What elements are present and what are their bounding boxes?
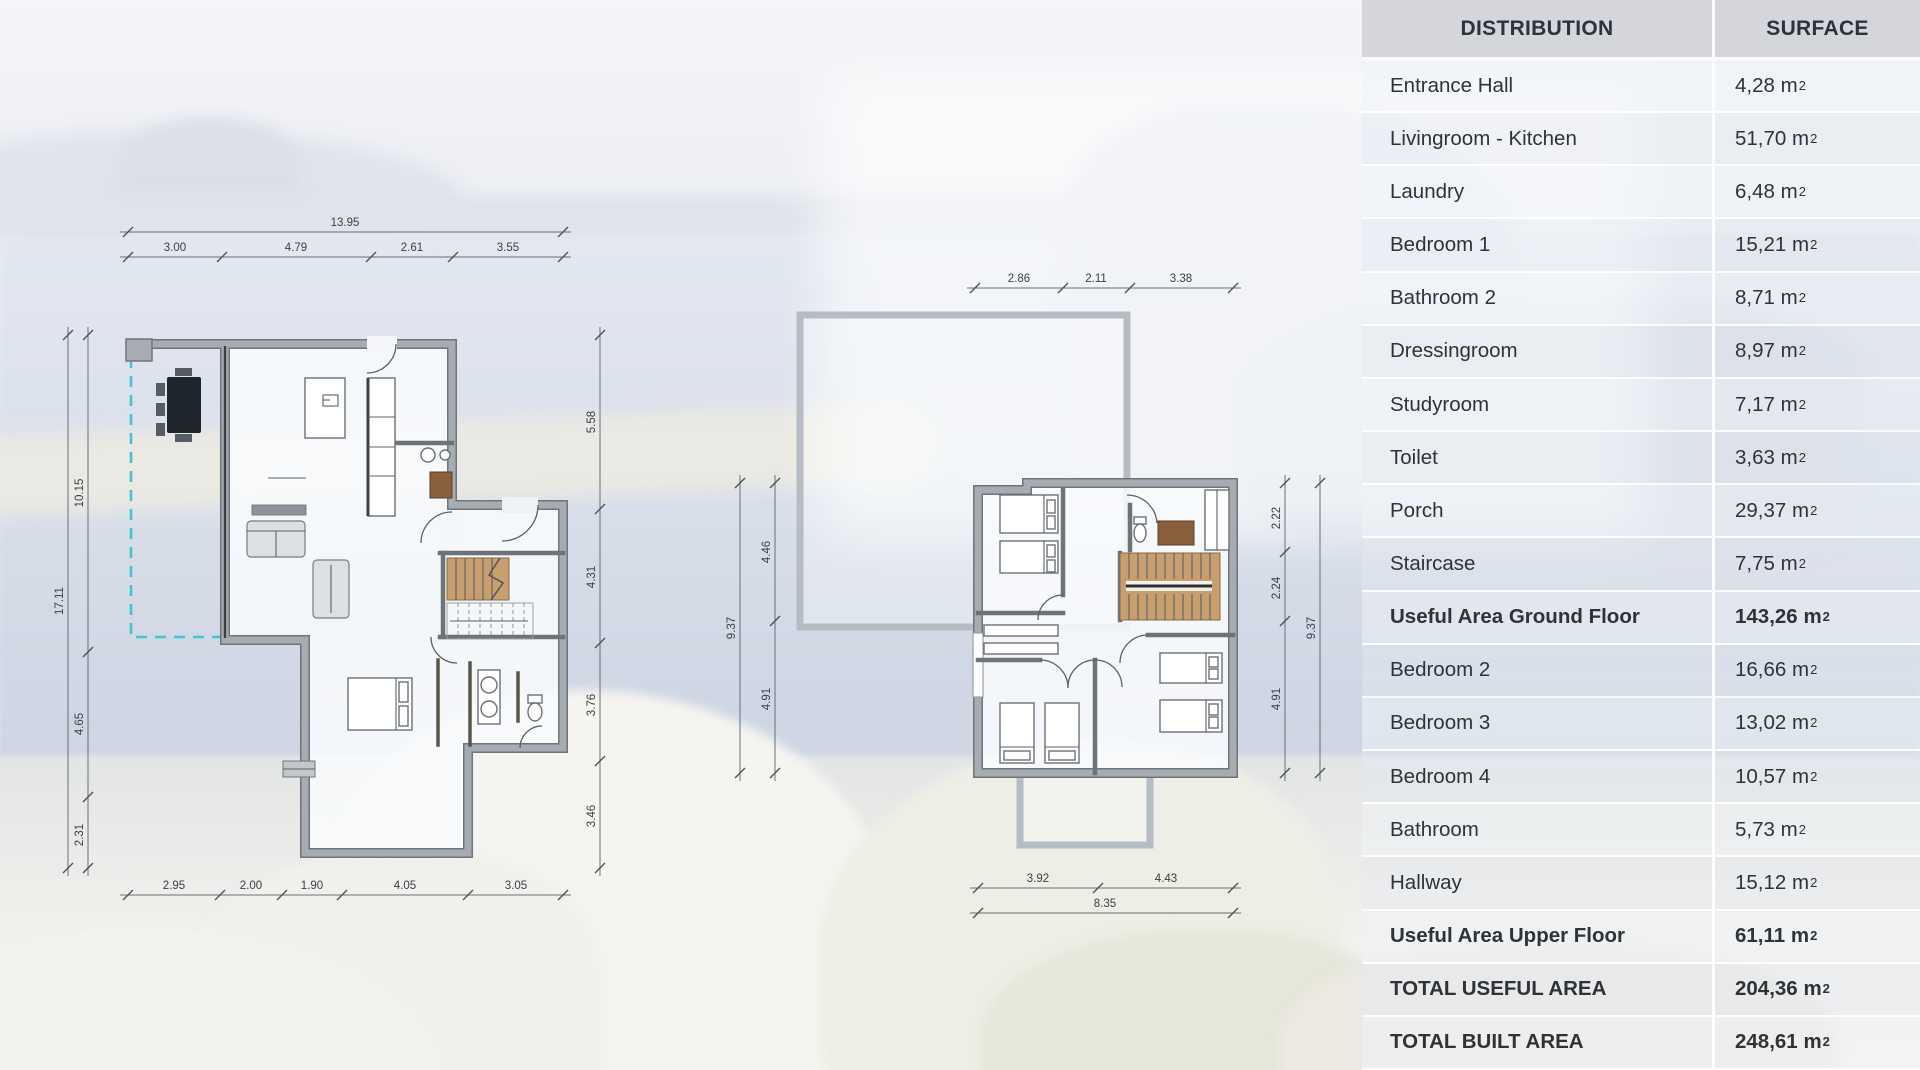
table-row: Toilet 3,63m2 <box>1362 432 1920 485</box>
svg-text:4.65: 4.65 <box>74 713 86 735</box>
table-row: Staircase 7,75m2 <box>1362 538 1920 591</box>
room-area: 51,70m2 <box>1712 113 1920 164</box>
svg-text:3.38: 3.38 <box>1170 273 1192 285</box>
table-row: Porch 29,37m2 <box>1362 485 1920 538</box>
room-area: 6,48m2 <box>1712 166 1920 217</box>
room-label: Staircase <box>1362 538 1712 589</box>
svg-text:2.00: 2.00 <box>240 880 262 892</box>
table-row-total: TOTAL BUILT AREA 248,61m2 <box>1362 1017 1920 1070</box>
room-label: Toilet <box>1362 432 1712 483</box>
room-area: 248,61m2 <box>1712 1017 1920 1068</box>
header-surface: SURFACE <box>1712 0 1920 57</box>
svg-text:17.11: 17.11 <box>54 587 66 615</box>
kitchen-island <box>305 378 345 438</box>
table-row: Bedroom 4 10,57m2 <box>1362 751 1920 804</box>
svg-text:2.86: 2.86 <box>1008 273 1030 285</box>
vanity-brown <box>1158 521 1194 545</box>
bed-double <box>348 678 412 730</box>
room-label: Porch <box>1362 485 1712 536</box>
room-label: Studyroom <box>1362 379 1712 430</box>
table-row: Dressingroom 8,97m2 <box>1362 326 1920 379</box>
svg-text:3.05: 3.05 <box>505 880 527 892</box>
room-label: Bedroom 3 <box>1362 698 1712 749</box>
table-row: Hallway 15,12m2 <box>1362 857 1920 910</box>
upper-floor-plan: 2.86 2.11 3.38 9.37 4.46 4.91 2.22 2.24 … <box>700 205 1360 935</box>
svg-text:3.46: 3.46 <box>586 805 598 827</box>
svg-text:4.05: 4.05 <box>394 880 416 892</box>
room-area: 5,73m2 <box>1712 804 1920 855</box>
room-area: 7,75m2 <box>1712 538 1920 589</box>
table-header: DISTRIBUTION SURFACE <box>1362 0 1920 60</box>
svg-text:3.92: 3.92 <box>1027 873 1049 885</box>
kitchen-cabinets <box>368 378 395 516</box>
room-label: Bathroom <box>1362 804 1712 855</box>
ground-floor-plan: 13.95 3.00 4.79 2.61 3.55 17.11 10.15 4.… <box>30 205 620 935</box>
room-area: 204,36m2 <box>1712 964 1920 1015</box>
svg-text:3.00: 3.00 <box>164 242 186 254</box>
table-row-subtotal: Useful Area Ground Floor 143,26m2 <box>1362 592 1920 645</box>
room-label: Laundry <box>1362 166 1712 217</box>
table-row-total: TOTAL USEFUL AREA 204,36m2 <box>1362 964 1920 1017</box>
svg-text:4.43: 4.43 <box>1155 873 1177 885</box>
svg-text:9.37: 9.37 <box>1306 617 1318 639</box>
svg-text:2.11: 2.11 <box>1085 273 1107 285</box>
svg-text:4.31: 4.31 <box>586 566 598 588</box>
svg-text:3.55: 3.55 <box>497 242 519 254</box>
table-row: Studyroom 7,17m2 <box>1362 379 1920 432</box>
svg-text:10.15: 10.15 <box>74 479 86 508</box>
room-label: TOTAL BUILT AREA <box>1362 1017 1712 1068</box>
room-area: 13,02m2 <box>1712 698 1920 749</box>
table-row: Bathroom 2 8,71m2 <box>1362 273 1920 326</box>
room-area: 15,12m2 <box>1712 857 1920 908</box>
background-mountain <box>120 118 300 208</box>
room-label: TOTAL USEFUL AREA <box>1362 964 1712 1015</box>
svg-text:4.46: 4.46 <box>761 541 773 563</box>
table-row: Bedroom 3 13,02m2 <box>1362 698 1920 751</box>
sofa <box>247 521 305 557</box>
svg-text:2.95: 2.95 <box>163 880 185 892</box>
room-label: Livingroom - Kitchen <box>1362 113 1712 164</box>
table-row: Livingroom - Kitchen 51,70m2 <box>1362 113 1920 166</box>
tv-sideboard <box>252 505 306 515</box>
svg-text:8.35: 8.35 <box>1094 898 1116 910</box>
staircase <box>1120 553 1220 620</box>
table-row: Bedroom 1 15,21m2 <box>1362 219 1920 272</box>
room-area: 8,97m2 <box>1712 326 1920 377</box>
room-area: 7,17m2 <box>1712 379 1920 430</box>
svg-text:4.91: 4.91 <box>761 688 773 710</box>
svg-text:4.91: 4.91 <box>1271 688 1283 710</box>
room-label: Hallway <box>1362 857 1712 908</box>
svg-text:2.22: 2.22 <box>1271 507 1283 529</box>
svg-text:2.31: 2.31 <box>74 824 86 846</box>
svg-text:13.95: 13.95 <box>331 217 360 229</box>
dining-table <box>156 368 201 442</box>
room-area: 4,28m2 <box>1712 60 1920 111</box>
room-label: Bedroom 2 <box>1362 645 1712 696</box>
room-label: Bedroom 4 <box>1362 751 1712 802</box>
svg-text:9.37: 9.37 <box>726 617 738 639</box>
room-label: Useful Area Ground Floor <box>1362 592 1712 643</box>
room-area: 10,57m2 <box>1712 751 1920 802</box>
room-label: Bathroom 2 <box>1362 273 1712 324</box>
cabinet-brown <box>430 472 452 498</box>
svg-text:5.58: 5.58 <box>586 411 598 433</box>
room-area: 61,11m2 <box>1712 911 1920 962</box>
table-row-subtotal: Useful Area Upper Floor 61,11m2 <box>1362 911 1920 964</box>
svg-text:4.79: 4.79 <box>285 242 307 254</box>
table-row: Entrance Hall 4,28m2 <box>1362 60 1920 113</box>
room-label: Bedroom 1 <box>1362 219 1712 270</box>
header-distribution: DISTRIBUTION <box>1362 0 1712 57</box>
svg-text:2.24: 2.24 <box>1271 576 1283 599</box>
balcony-outline <box>1020 773 1150 845</box>
table-row: Bedroom 2 16,66m2 <box>1362 645 1920 698</box>
window <box>973 633 983 697</box>
armchair <box>313 560 349 618</box>
room-label: Entrance Hall <box>1362 60 1712 111</box>
room-area: 16,66m2 <box>1712 645 1920 696</box>
svg-text:1.90: 1.90 <box>301 880 323 892</box>
room-area: 29,37m2 <box>1712 485 1920 536</box>
room-label: Dressingroom <box>1362 326 1712 377</box>
plan-sheet: 13.95 3.00 4.79 2.61 3.55 17.11 10.15 4.… <box>0 0 1920 1070</box>
room-label: Useful Area Upper Floor <box>1362 911 1712 962</box>
table-row: Bathroom 5,73m2 <box>1362 804 1920 857</box>
svg-text:3.76: 3.76 <box>586 694 598 716</box>
room-area: 8,71m2 <box>1712 273 1920 324</box>
table-row: Laundry 6,48m2 <box>1362 166 1920 219</box>
svg-text:2.61: 2.61 <box>401 242 423 254</box>
surface-table: DISTRIBUTION SURFACE Entrance Hall 4,28m… <box>1362 0 1920 1070</box>
room-area: 143,26m2 <box>1712 592 1920 643</box>
entrance-steps <box>283 761 315 777</box>
room-area: 3,63m2 <box>1712 432 1920 483</box>
room-area: 15,21m2 <box>1712 219 1920 270</box>
